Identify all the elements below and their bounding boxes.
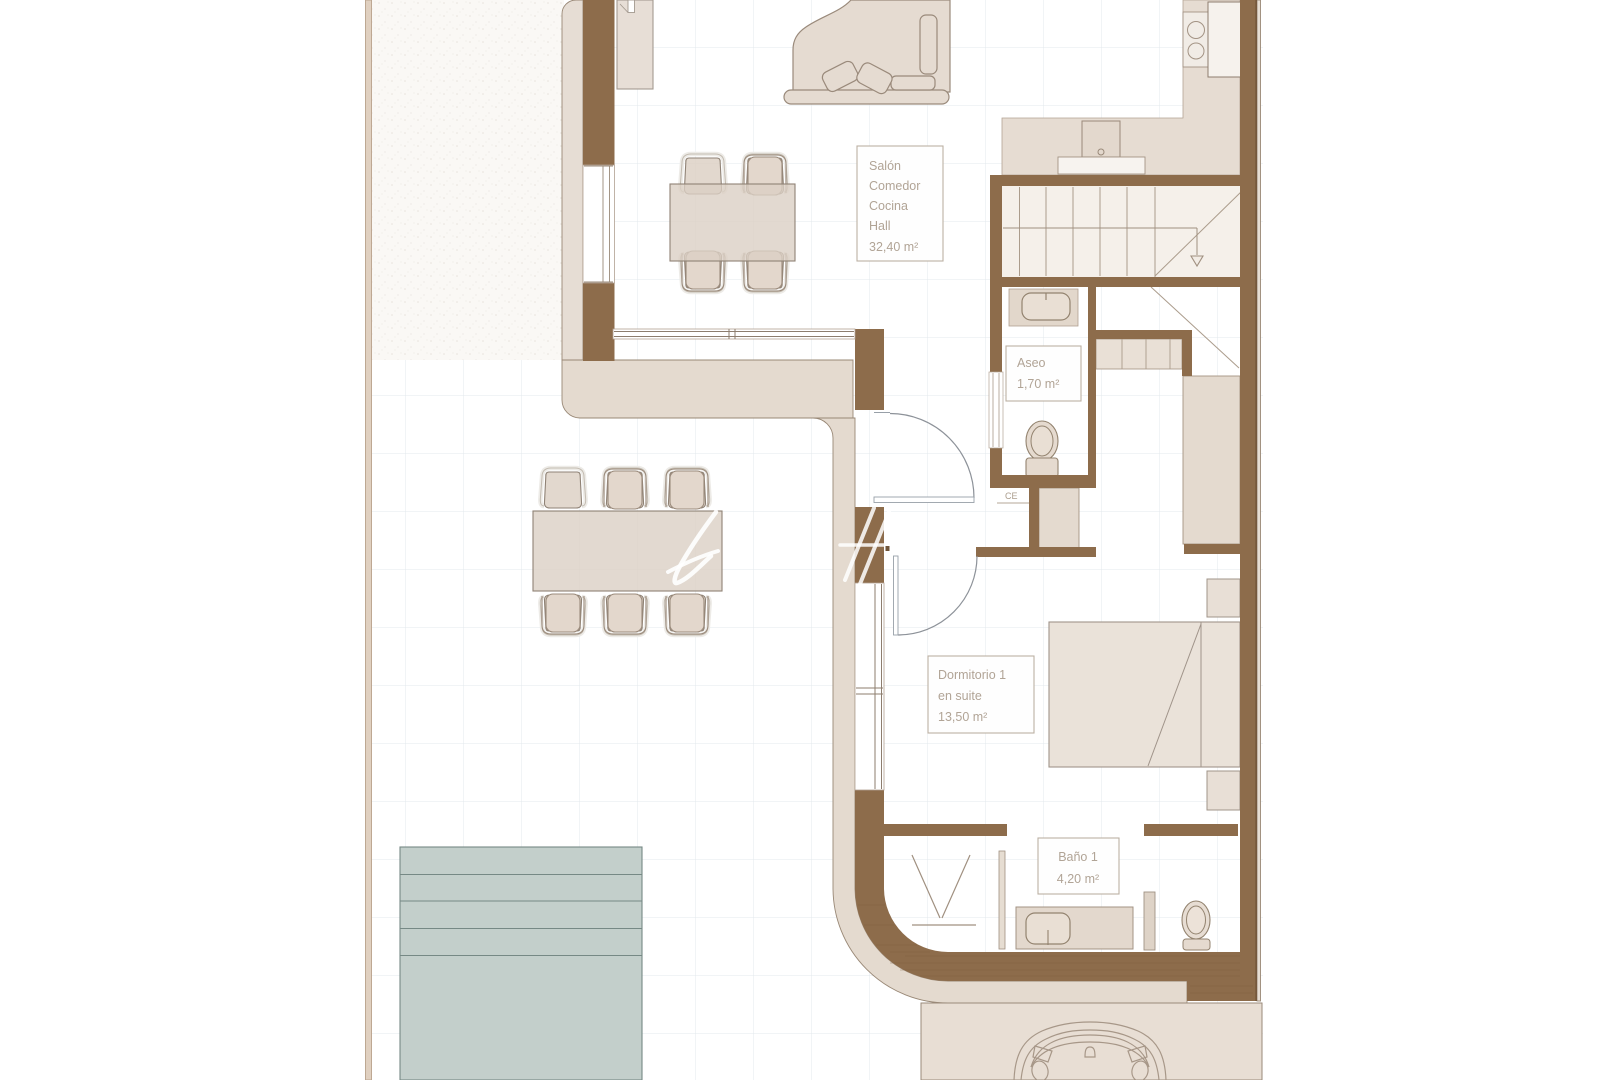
svg-text:Salón: Salón: [869, 159, 901, 173]
svg-text:Hall: Hall: [869, 219, 891, 233]
svg-text:1,70 m²: 1,70 m²: [1017, 377, 1059, 391]
svg-text:Cocina: Cocina: [869, 199, 908, 213]
svg-text:Comedor: Comedor: [869, 179, 920, 193]
svg-text:en suite: en suite: [938, 689, 982, 703]
svg-text:CE: CE: [1005, 491, 1018, 501]
svg-text:4,20 m²: 4,20 m²: [1057, 872, 1099, 886]
svg-text:32,40 m²: 32,40 m²: [869, 240, 918, 254]
svg-text:13,50 m²: 13,50 m²: [938, 710, 987, 724]
svg-text:Aseo: Aseo: [1017, 356, 1046, 370]
svg-text:Dormitorio 1: Dormitorio 1: [938, 668, 1006, 682]
svg-text:Baño 1: Baño 1: [1058, 850, 1098, 864]
